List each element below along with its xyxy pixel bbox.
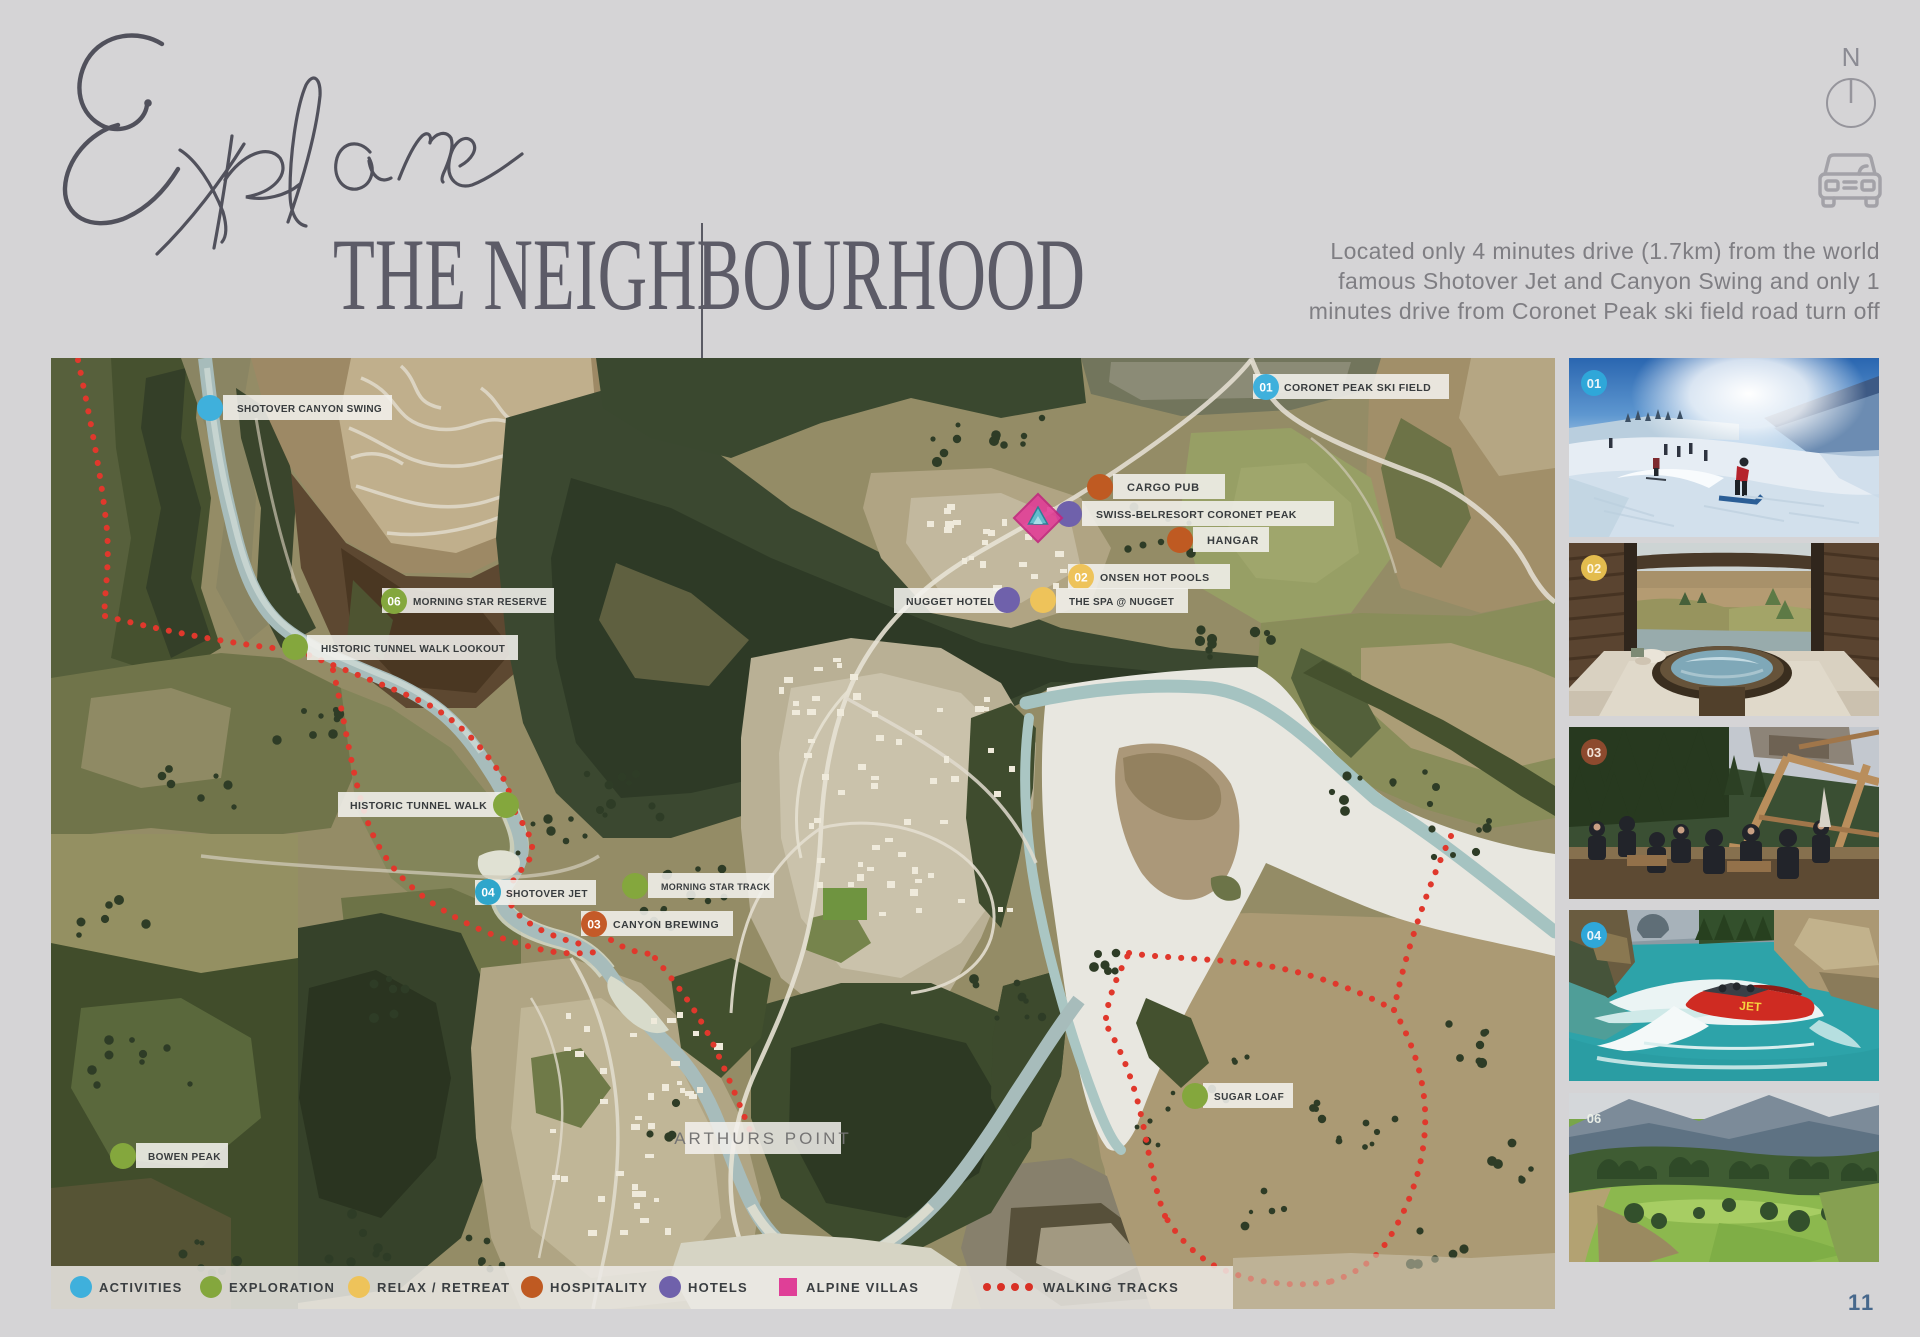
svg-text:BOWEN PEAK: BOWEN PEAK (148, 1152, 221, 1163)
svg-text:MORNING STAR RESERVE: MORNING STAR RESERVE (413, 597, 547, 608)
svg-text:MORNING STAR TRACK: MORNING STAR TRACK (661, 882, 770, 892)
svg-text:RELAX / RETREAT: RELAX / RETREAT (377, 1280, 510, 1295)
svg-text:SWISS-BELRESORT CORONET PEAK: SWISS-BELRESORT CORONET PEAK (1096, 509, 1297, 521)
svg-text:06: 06 (387, 595, 401, 609)
svg-text:03: 03 (587, 918, 601, 932)
svg-text:04: 04 (481, 886, 495, 900)
svg-text:NUGGET HOTEL: NUGGET HOTEL (906, 596, 994, 608)
svg-text:06: 06 (1587, 1111, 1601, 1126)
svg-text:JET: JET (1739, 999, 1763, 1015)
svg-text:ARTHURS POINT: ARTHURS POINT (674, 1129, 852, 1148)
svg-text:04: 04 (1587, 928, 1602, 943)
svg-text:HANGAR: HANGAR (1207, 535, 1259, 547)
svg-text:N: N (1842, 42, 1861, 72)
svg-text:HOTELS: HOTELS (688, 1280, 748, 1295)
svg-text:WALKING TRACKS: WALKING TRACKS (1043, 1280, 1179, 1295)
svg-text:03: 03 (1587, 745, 1601, 760)
svg-text:SHOTOVER CANYON SWING: SHOTOVER CANYON SWING (237, 404, 382, 415)
svg-text:ONSEN HOT POOLS: ONSEN HOT POOLS (1100, 572, 1210, 584)
svg-text:SUGAR LOAF: SUGAR LOAF (1214, 1092, 1284, 1103)
svg-text:HISTORIC TUNNEL WALK: HISTORIC TUNNEL WALK (350, 800, 487, 812)
svg-text:HOSPITALITY: HOSPITALITY (550, 1280, 648, 1295)
svg-text:CORONET PEAK SKI FIELD: CORONET PEAK SKI FIELD (1284, 382, 1431, 394)
svg-text:02: 02 (1074, 571, 1088, 585)
svg-text:ACTIVITIES: ACTIVITIES (99, 1280, 183, 1295)
svg-text:SHOTOVER JET: SHOTOVER JET (506, 889, 588, 900)
svg-text:THE NEIGHBOURHOOD: THE NEIGHBOURHOOD (333, 225, 1085, 325)
svg-text:01: 01 (1259, 381, 1273, 395)
svg-text:CANYON BREWING: CANYON BREWING (613, 919, 719, 931)
svg-text:ALPINE VILLAS: ALPINE VILLAS (806, 1280, 919, 1295)
svg-text:CARGO PUB: CARGO PUB (1127, 482, 1200, 494)
svg-text:01: 01 (1587, 376, 1601, 391)
svg-text:HISTORIC TUNNEL WALK LOOKOUT: HISTORIC TUNNEL WALK LOOKOUT (321, 644, 505, 655)
svg-text:THE SPA @ NUGGET: THE SPA @ NUGGET (1069, 597, 1174, 608)
svg-text:02: 02 (1587, 561, 1601, 576)
svg-text:EXPLORATION: EXPLORATION (229, 1280, 335, 1295)
